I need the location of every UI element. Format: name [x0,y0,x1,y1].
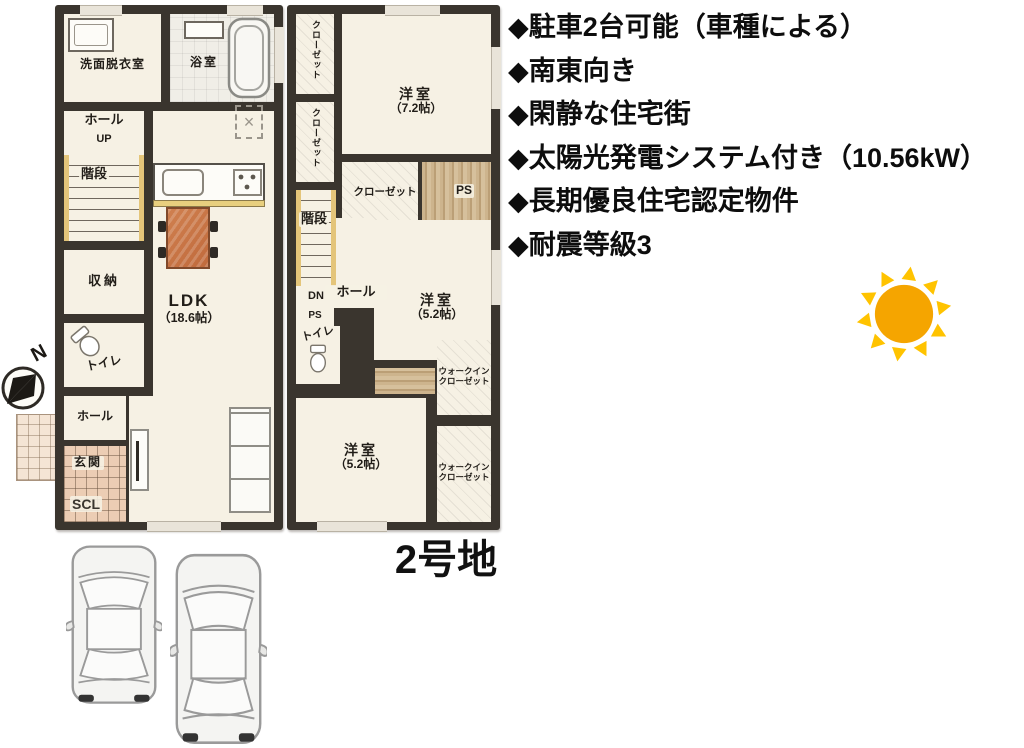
room-closet-2f-3: クローゼット [342,162,418,220]
label-bedroom-2: 洋室 （5.2帖） [382,292,492,322]
room-toilet-1f: トイレ [64,323,144,387]
chair-icon [158,247,166,258]
room-washroom: 洗面脱衣室 [64,14,161,102]
room-bath: 浴室 [170,14,274,102]
flyer-canvas: 洗面脱衣室 浴室 ホール UP 階段 収納 [0,0,1024,748]
label-ps-2: PS [296,310,334,322]
sofa-icon [229,407,271,513]
room-ps-small: PS [296,308,334,326]
plot-number-label: 2号地 [340,527,552,585]
chair-icon [210,221,218,232]
door-gap [274,27,284,83]
feature-item: ◆太陽光発電システム付き（10.56kW） [508,137,1022,181]
room-toilet-2f: トイレ [296,326,340,384]
window [385,5,440,16]
label-bedroom-3: 洋室 （5.2帖） [311,442,411,472]
label-closet-3: クローゼット [342,186,428,198]
label-closet-1: クローゼット [310,20,323,80]
feature-item: ◆閑静な住宅街 [508,93,1022,137]
compass-icon: N [0,338,58,412]
window [227,5,263,16]
label-stairs-1f: 階段 [79,167,109,182]
car-icon [170,552,267,748]
label-storage: 収納 [64,274,144,289]
floor-plan-1f: 洗面脱衣室 浴室 ホール UP 階段 収納 [55,5,283,530]
label-scl: SCL [70,496,102,512]
room-stairs-2f: 階段 [296,190,336,286]
room-wic-1: ウォークイン クローゼット [437,340,491,415]
compass-n-label: N [28,340,51,366]
label-wic-2: ウォークイン クローゼット [438,462,490,482]
bath-counter-icon [184,21,224,39]
room-closet-2f-2: クローゼット [296,102,334,182]
label-bath: 浴室 [174,56,234,70]
label-hall-2f: ホール [325,285,387,300]
feature-item: ◆駐車2台可能（車種による） [508,6,1022,50]
fridge-space: × [235,105,263,139]
floor-plan-2f: クローゼット クローゼット 階段 DN PS トイレ 洋室 [287,5,500,530]
sun-icon [852,262,956,366]
feature-item: ◆耐震等級3 [508,224,1022,268]
tv-board-icon [130,429,149,491]
room-stairs-1f: 階段 [64,155,144,241]
label-wic-1: ウォークイン クローゼット [438,366,490,386]
kitchen-counter-trim [153,200,265,207]
feature-list: ◆駐車2台可能（車種による） ◆南東向き ◆閑静な住宅街 ◆太陽光発電システム付… [508,6,1022,267]
room-bedroom-3: 洋室 （5.2帖） [296,398,426,522]
window [491,250,501,305]
kitchen-sink-icon [162,169,204,196]
window [491,47,501,109]
chair-icon [210,247,218,258]
car-icon [66,544,162,707]
dining-table-icon [166,207,210,269]
label-bedroom-1: 洋室 （7.2帖） [366,86,466,116]
room-bedroom-1: 洋室 （7.2帖） [342,14,491,154]
label-ldk: LDK （18.6帖） [139,291,239,325]
label-closet-2: クローゼット [310,108,323,168]
window [80,5,122,16]
label-up: UP [64,133,144,146]
feature-item: ◆南東向き [508,50,1022,94]
label-washroom: 洗面脱衣室 [64,58,161,72]
room-entrance: 玄関 SCL [64,446,126,522]
label-ps-1: PS [454,184,474,198]
balcony-deck [375,368,435,394]
toilet-icon [307,344,329,374]
room-ps-wood: PS [422,162,491,220]
room-bedroom-2: 洋室 （5.2帖） [374,220,491,360]
room-hall-1f-lower: ホール [64,396,126,440]
label-hall-upper: ホール [64,113,144,128]
room-hall-1f-upper: ホール UP [64,111,144,155]
label-entrance: 玄関 [72,456,104,470]
chair-icon [158,221,166,232]
label-hall-lower: ホール [64,410,126,424]
room-storage: 収納 [64,250,144,314]
stove-icon [233,169,262,196]
room-wic-2: ウォークイン クローゼット [437,426,491,522]
feature-item: ◆長期優良住宅認定物件 [508,180,1022,224]
window [147,521,221,532]
washing-machine-icon [68,18,114,52]
room-closet-2f-1: クローゼット [296,14,334,94]
label-stairs-2f: 階段 [299,212,329,227]
label-toilet-2f: トイレ [293,322,343,346]
